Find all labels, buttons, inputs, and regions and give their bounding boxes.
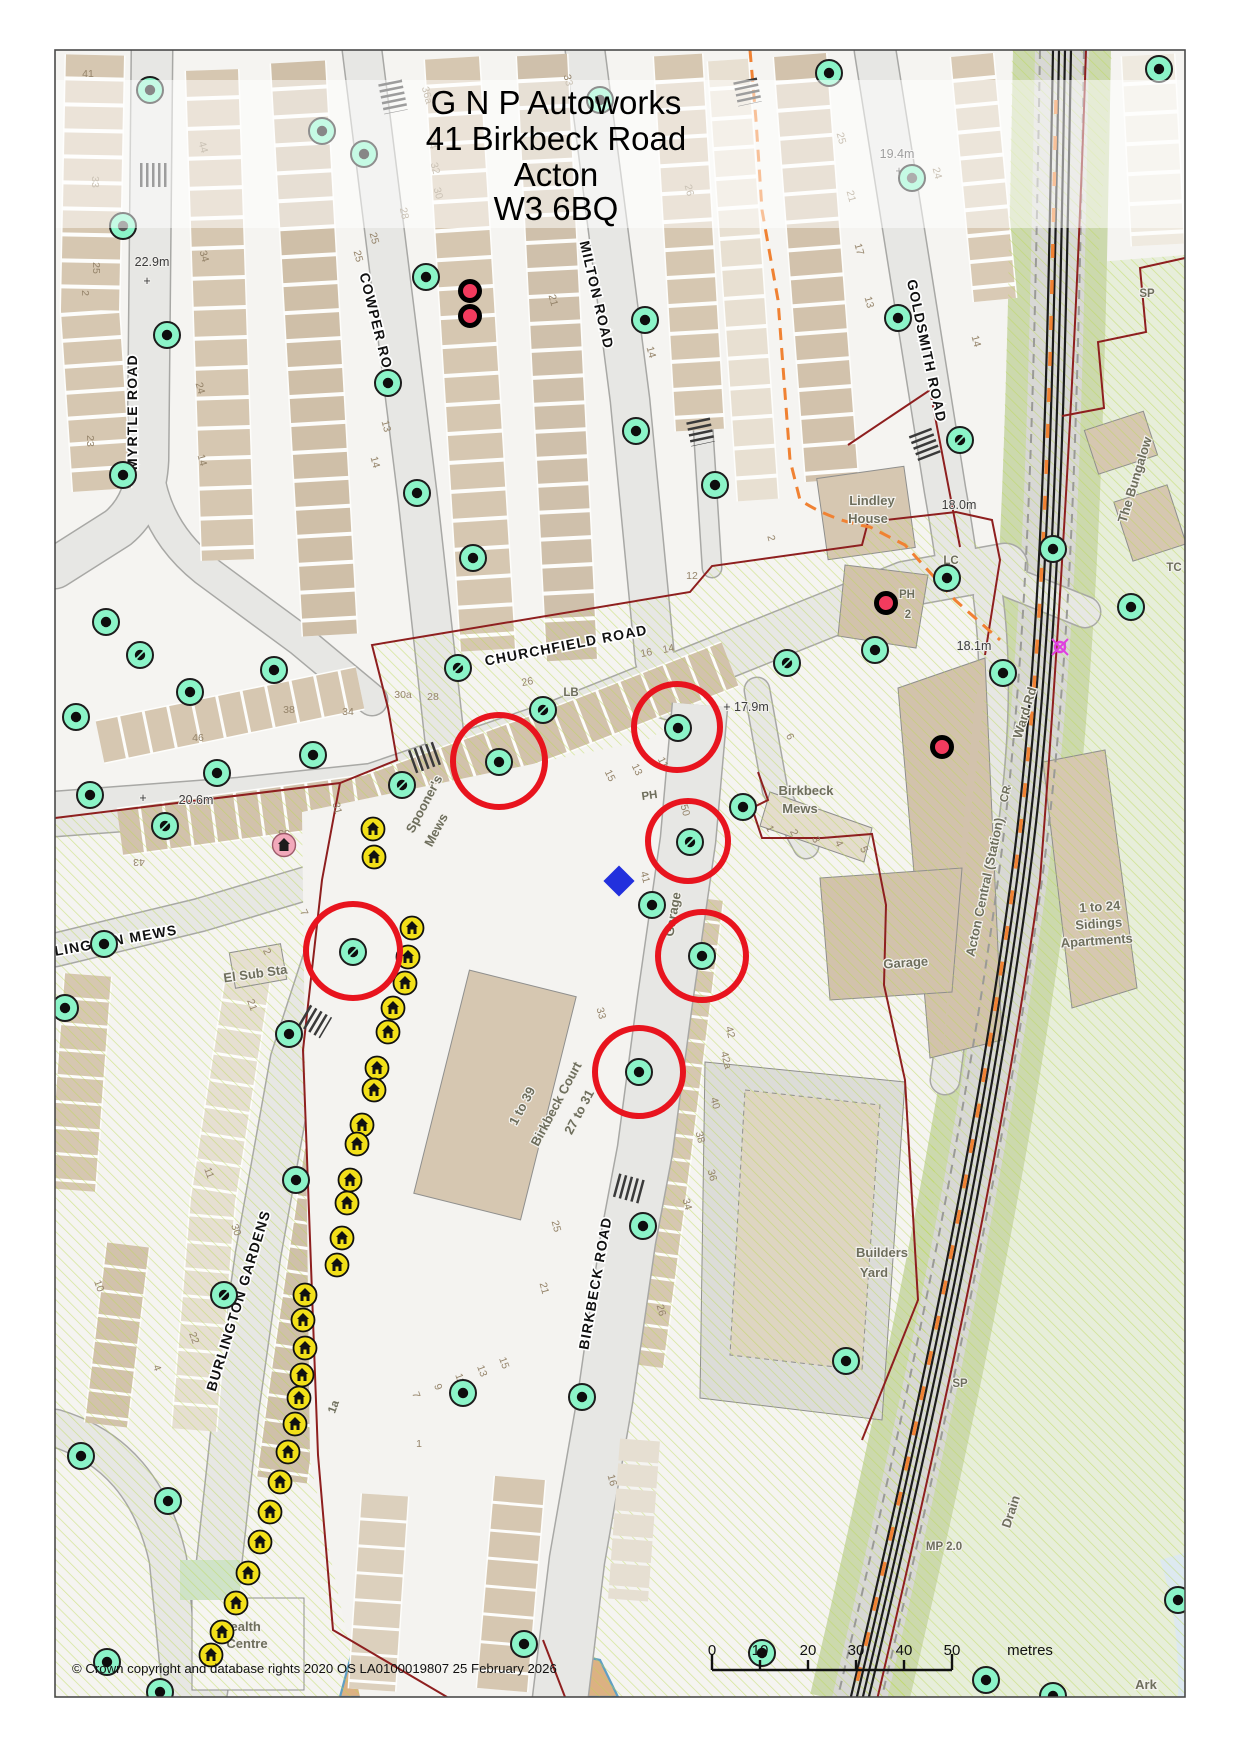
tree-marker — [460, 545, 486, 571]
house-number: 38 — [283, 704, 295, 716]
scale-tick-label: 10 — [752, 1642, 769, 1659]
house-number: 46 — [192, 732, 204, 744]
title-line-2: 41 Birkbeck Road — [426, 120, 686, 157]
area-label: Yard — [860, 1265, 888, 1280]
area-label: Ark — [1135, 1677, 1157, 1692]
house-marker — [336, 1192, 359, 1215]
tree-marker — [486, 749, 512, 775]
house-number: 25 — [90, 262, 102, 274]
crimson-dot-marker — [461, 307, 480, 326]
tree-marker — [52, 995, 78, 1021]
tree-marker — [1040, 536, 1066, 562]
tree-marker — [177, 679, 203, 705]
house-marker — [346, 1133, 369, 1156]
tree-marker — [450, 1380, 476, 1406]
title-block: G N P Autoworks 41 Birkbeck Road Acton W… — [55, 80, 1185, 228]
spot-height: + — [139, 791, 146, 805]
area-label: Lindley — [849, 493, 895, 508]
house-marker — [326, 1254, 349, 1277]
house-marker — [401, 917, 424, 940]
house-marker — [292, 1309, 315, 1332]
tree-marker — [375, 370, 401, 396]
title-line-1: G N P Autoworks — [431, 84, 682, 121]
tree-marker — [445, 655, 471, 681]
house-marker — [277, 1441, 300, 1464]
tree-marker — [626, 1059, 652, 1085]
area-label: House — [848, 511, 888, 526]
tree-marker — [300, 742, 326, 768]
house-marker — [288, 1387, 311, 1410]
small-label: TC — [1166, 562, 1181, 574]
tree-marker — [276, 1021, 302, 1047]
house-marker — [362, 818, 385, 841]
house-number: 23 — [84, 435, 96, 447]
house-marker — [377, 1021, 400, 1044]
tree-marker — [833, 1348, 859, 1374]
small-label: PH — [899, 589, 915, 601]
area-label: Birkbeck — [779, 783, 835, 798]
tree-marker — [77, 782, 103, 808]
tree-marker — [404, 480, 430, 506]
house-marker — [259, 1501, 282, 1524]
house-marker — [339, 1169, 362, 1192]
small-label: LB — [563, 687, 578, 699]
tree-marker — [389, 772, 415, 798]
house-marker — [291, 1364, 314, 1387]
house-number: 16 — [640, 646, 654, 660]
map-canvas: MYRTLE ROADCOWPER ROADMILTON ROADGOLDSMI… — [0, 0, 1240, 1755]
tree-marker — [665, 715, 691, 741]
house-number: 2 — [79, 290, 91, 296]
tree-marker — [947, 427, 973, 453]
house-marker — [294, 1284, 317, 1307]
tree-marker — [63, 704, 89, 730]
house-marker — [382, 997, 405, 1020]
os-map-extract: MYRTLE ROADCOWPER ROADMILTON ROADGOLDSMI… — [0, 0, 1240, 1755]
copyright-text: © Crown copyright and database rights 20… — [72, 1661, 557, 1676]
area-label: 1 to 24 — [1079, 898, 1122, 916]
crimson-dot-marker — [461, 282, 480, 301]
level-crossing-icon — [1052, 639, 1068, 655]
crimson-dot-marker — [877, 594, 896, 613]
house-number: 14 — [662, 642, 676, 656]
tree-marker — [632, 307, 658, 333]
tree-marker — [990, 660, 1016, 686]
spot-height: + 17.9m — [723, 700, 769, 714]
tree-marker — [885, 305, 911, 331]
street-label: MYRTLE ROAD — [124, 354, 140, 470]
tree-marker — [283, 1167, 309, 1193]
scale-tick-label: 30 — [848, 1642, 865, 1659]
house-number: 41 — [82, 68, 94, 80]
tree-marker — [340, 939, 366, 965]
tree-marker — [154, 322, 180, 348]
area-label: Garage — [883, 953, 929, 971]
house-marker — [211, 1621, 234, 1644]
tree-marker — [211, 1282, 237, 1308]
house-number: 1 — [416, 1438, 422, 1450]
tree-marker — [702, 472, 728, 498]
tree-marker — [68, 1443, 94, 1469]
spot-height: 20.6m — [179, 793, 214, 807]
tree-marker — [569, 1384, 595, 1410]
house-marker — [363, 846, 386, 869]
house-number: 28 — [427, 691, 439, 703]
tree-marker — [93, 609, 119, 635]
title-line-3: Acton — [514, 156, 598, 193]
house-marker — [294, 1337, 317, 1360]
house-marker — [394, 972, 417, 995]
house-marker — [249, 1531, 272, 1554]
scale-unit-label: metres — [1007, 1642, 1053, 1659]
tree-marker — [155, 1488, 181, 1514]
tree-marker — [973, 1667, 999, 1693]
house-number: 12 — [686, 570, 698, 582]
area-label: Builders — [856, 1245, 908, 1260]
tree-marker — [152, 813, 178, 839]
house-marker — [269, 1471, 292, 1494]
tree-marker — [530, 697, 556, 723]
small-label: PH — [641, 789, 658, 803]
tree-marker — [204, 760, 230, 786]
birkbeck-block — [302, 705, 700, 1700]
house-number: 34 — [342, 706, 354, 718]
tree-marker — [413, 264, 439, 290]
scale-tick-label: 20 — [800, 1642, 817, 1659]
pink-house-marker — [273, 834, 296, 857]
tree-marker — [730, 794, 756, 820]
house-number: 43 — [133, 856, 145, 868]
house-marker — [225, 1592, 248, 1615]
house-marker — [366, 1057, 389, 1080]
house-number: 26 — [521, 675, 535, 689]
tree-marker — [261, 657, 287, 683]
tree-marker — [623, 418, 649, 444]
spot-height: 18.0m — [942, 498, 977, 512]
house-marker — [237, 1562, 260, 1585]
tree-marker — [1118, 594, 1144, 620]
spot-height: 18.1m — [957, 639, 992, 653]
small-label: 2 — [905, 609, 911, 621]
tree-marker — [934, 565, 960, 591]
tree-marker — [91, 931, 117, 957]
tree-marker — [689, 943, 715, 969]
tree-marker — [774, 650, 800, 676]
tree-marker — [110, 462, 136, 488]
small-label: SP — [952, 1378, 968, 1390]
tree-marker — [511, 1631, 537, 1657]
tree-marker — [1146, 56, 1172, 82]
tree-marker — [639, 892, 665, 918]
tree-marker — [630, 1213, 656, 1239]
spot-height: + — [143, 274, 150, 288]
area-label: Mews — [782, 801, 817, 816]
tree-marker — [127, 642, 153, 668]
house-marker — [363, 1079, 386, 1102]
tree-marker — [677, 829, 703, 855]
crimson-dot-marker — [933, 738, 952, 757]
spot-height: 22.9m — [135, 255, 170, 269]
scale-tick-label: 40 — [896, 1642, 913, 1659]
small-label: SP — [1139, 288, 1155, 300]
tree-marker — [862, 637, 888, 663]
title-line-4: W3 6BQ — [494, 190, 619, 227]
small-label: MP 2.0 — [926, 1541, 962, 1553]
house-marker — [331, 1227, 354, 1250]
house-marker — [284, 1413, 307, 1436]
house-number: 30a — [394, 689, 412, 701]
